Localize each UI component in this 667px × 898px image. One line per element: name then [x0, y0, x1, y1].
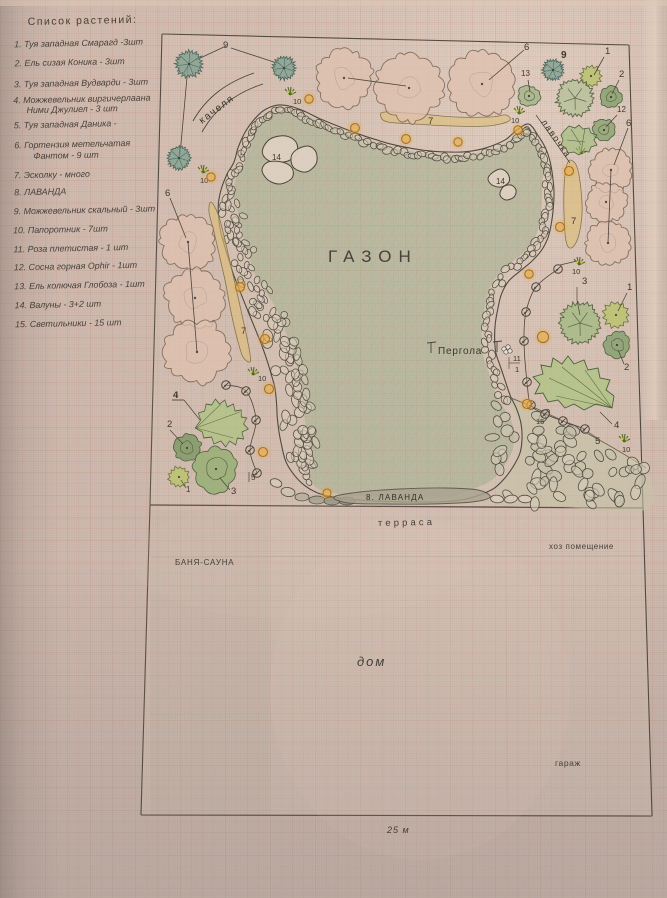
- svg-text:1: 1: [515, 365, 519, 374]
- svg-text:7: 7: [241, 326, 246, 337]
- svg-text:9: 9: [223, 40, 228, 51]
- svg-text:6: 6: [626, 118, 631, 129]
- svg-text:БАНЯ-САУНА: БАНЯ-САУНА: [175, 558, 234, 567]
- svg-text:2: 2: [167, 419, 172, 430]
- svg-text:терраса: терраса: [378, 517, 435, 529]
- svg-text:8. ЛАВАНДА: 8. ЛАВАНДА: [14, 186, 66, 197]
- svg-text:10: 10: [293, 97, 301, 106]
- svg-text:10: 10: [572, 267, 580, 276]
- svg-text:Ними Джулиел - 3 шт: Ними Джулиел - 3 шт: [26, 103, 117, 115]
- svg-text:10: 10: [258, 374, 266, 383]
- svg-text:2: 2: [619, 69, 624, 80]
- svg-text:1: 1: [627, 282, 632, 293]
- svg-text:9: 9: [561, 50, 567, 61]
- svg-text:3: 3: [231, 486, 236, 497]
- svg-text:гараж: гараж: [555, 758, 581, 768]
- svg-text:8. ЛАВАНДА: 8. ЛАВАНДА: [366, 493, 424, 502]
- svg-text:1: 1: [186, 485, 191, 494]
- svg-text:10: 10: [622, 445, 630, 454]
- svg-text:6: 6: [165, 188, 170, 199]
- svg-text:25 м: 25 м: [386, 825, 410, 835]
- svg-text:2: 2: [624, 362, 629, 373]
- svg-text:14: 14: [272, 153, 281, 162]
- svg-text:1: 1: [605, 46, 610, 57]
- svg-text:ГАЗОН: ГАЗОН: [328, 247, 418, 266]
- svg-text:5: 5: [595, 436, 600, 447]
- svg-text:15: 15: [536, 417, 544, 426]
- svg-text:14. Валуны - 3+2 шт: 14. Валуны - 3+2 шт: [15, 299, 102, 311]
- svg-text:5: 5: [251, 473, 256, 482]
- svg-text:Список растений:: Список растений:: [28, 14, 138, 28]
- svg-text:14: 14: [496, 177, 505, 186]
- svg-text:7. Эсколку - много: 7. Эсколку - много: [14, 169, 90, 181]
- svg-text:11: 11: [513, 354, 521, 363]
- svg-text:3: 3: [582, 276, 587, 287]
- svg-text:4: 4: [173, 390, 179, 401]
- svg-text:10. Папоротник - 7шт: 10. Папоротник - 7шт: [13, 223, 108, 235]
- svg-text:6: 6: [524, 42, 529, 53]
- svg-text:13: 13: [521, 69, 530, 78]
- svg-text:хоз помещение: хоз помещение: [549, 542, 614, 551]
- svg-text:Фантом - 9 шт: Фантом - 9 шт: [33, 150, 98, 161]
- svg-text:4: 4: [614, 420, 619, 431]
- svg-text:7: 7: [428, 116, 433, 127]
- svg-text:дом: дом: [357, 654, 386, 669]
- svg-text:12: 12: [617, 105, 626, 114]
- svg-text:Пергола: Пергола: [438, 346, 482, 357]
- svg-text:7: 7: [571, 216, 576, 227]
